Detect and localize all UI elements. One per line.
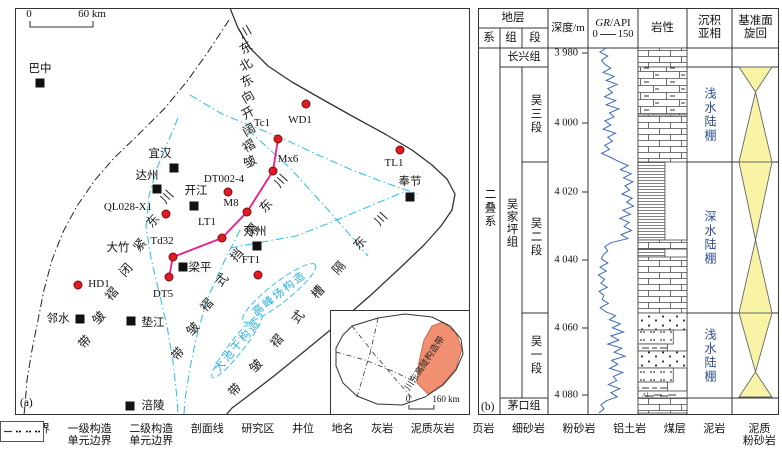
legend: 盆地边界一级构造 单元边界二级构造 单元边界剖面线研究区井位地名灰岩泥质灰岩页岩… xyxy=(0,421,782,473)
fold-belt-label-char: 川 xyxy=(271,171,291,191)
city-label-宜汉: 宜汉 xyxy=(149,145,172,161)
legend-label-place: 地名 xyxy=(332,423,354,435)
fold-belt-label-char: 式 xyxy=(288,307,308,327)
cycle-triangle-up xyxy=(739,92,772,162)
fold-belt-label-char: 东 xyxy=(236,39,255,58)
member-label-吴一段: 吴一段 xyxy=(522,313,548,398)
header-facies: 沉积 亚相 xyxy=(687,8,732,48)
gr-range: 0 150 xyxy=(593,29,634,40)
city-label-达州: 达州 xyxy=(136,167,159,183)
place-label-大竹: 大竹 xyxy=(107,239,130,255)
well-label-Td32: Td32 xyxy=(150,235,173,247)
fold-belt-label-char: 东 xyxy=(256,196,276,216)
member-label-吴二段: 吴二段 xyxy=(522,162,548,313)
depth-label: 4 020 xyxy=(544,187,578,198)
well-label-DT5: DT5 xyxy=(153,288,173,300)
scalebar-zero: 0 xyxy=(26,8,32,20)
legend-item-dashdot-black: 一级构造 单元边界 xyxy=(68,421,112,447)
legend-item-coal: 煤层 xyxy=(664,421,686,435)
legend-label-dashdot-cyan: 二级构造 单元边界 xyxy=(129,423,173,447)
lith-lime xyxy=(638,257,687,313)
gr-range-dash xyxy=(600,34,616,35)
depth-label: 4 060 xyxy=(544,323,578,334)
fold-belt-label-char: 北 xyxy=(237,55,256,74)
fold-belt-label-char: 东 xyxy=(350,234,370,254)
inset-scale-distance: 160 km xyxy=(432,394,459,404)
gr-label-italic: GR xyxy=(595,17,610,29)
legend-label-argsilt: 泥质 粉砂岩 xyxy=(743,423,776,447)
well-label-TL1: TL1 xyxy=(385,157,404,169)
city-label-涪陵: 涪陵 xyxy=(142,397,165,413)
cycle-triangle-down xyxy=(739,313,772,372)
fold-belt-label-char: 皱 xyxy=(183,319,203,339)
well-label-Mx6: Mx6 xyxy=(278,153,299,165)
legend-label-arglime: 泥质灰岩 xyxy=(411,423,455,435)
legend-label-profile: 剖面线 xyxy=(191,423,224,435)
legend-item-mud: 泥岩 xyxy=(703,421,725,435)
legend-item-argsilt: 泥质 粉砂岩 xyxy=(743,421,776,447)
facies-label: 浅水陆棚 xyxy=(687,313,732,398)
legend-label-well: 井位 xyxy=(292,423,314,435)
figure: 巴中宜汉达州开江万州奉节梁平邻水垫江涪陵大竹QL028-X1HD1DT5Td32… xyxy=(0,0,782,473)
legend-swatch-argsilt xyxy=(0,421,44,442)
legend-label-bauxite: 铝土岩 xyxy=(613,423,646,435)
depth-label: 4 080 xyxy=(544,390,578,401)
well-label-WD1: WD1 xyxy=(288,114,312,126)
legend-item-place: 地名 xyxy=(332,421,354,435)
legend-item-profile: 剖面线 xyxy=(191,421,224,435)
cycle-triangle-up xyxy=(739,240,772,313)
legend-item-lime: 灰岩 xyxy=(371,421,393,435)
legend-label-shale: 页岩 xyxy=(472,423,494,435)
header-depth: 深度/m xyxy=(548,8,588,48)
legend-item-arglime: 泥质灰岩 xyxy=(411,421,455,435)
panel-a-tag: (a) xyxy=(20,397,33,409)
gr-max: 150 xyxy=(618,29,634,40)
inset-scale-zero: 0 xyxy=(406,394,411,404)
cycle-triangle-down xyxy=(739,162,772,240)
depth-label: 3 980 xyxy=(544,48,578,59)
lith-arglime xyxy=(638,67,687,115)
header-gr: GR/API 0 150 xyxy=(588,8,638,48)
legend-label-finesand: 细砂岩 xyxy=(512,423,545,435)
city-label-邻水: 邻水 xyxy=(47,310,70,326)
lith-mud xyxy=(638,344,667,351)
fold-belt-label-char: 闭 xyxy=(116,260,136,280)
lith-lime xyxy=(638,240,687,249)
legend-item-dashdot-cyan: 二级构造 单元边界 xyxy=(129,421,173,447)
fold-belt-label-char: 褶 xyxy=(198,295,218,315)
lith-silt xyxy=(638,368,673,382)
argsilt-dot xyxy=(29,431,31,433)
well-label-LT1: LT1 xyxy=(198,216,216,228)
fold-belt-label-char: 带 xyxy=(75,332,95,352)
top-formation-label: 长兴组 xyxy=(500,48,548,67)
fold-belt-label-char: 川 xyxy=(371,209,391,229)
argsilt-dot xyxy=(19,431,21,433)
fold-belt-label-char: 皱 xyxy=(240,152,259,171)
lith-lime xyxy=(638,115,687,162)
fold-belt-label-char: 皱 xyxy=(246,356,266,376)
well-label-QL028-X1: QL028-X1 xyxy=(104,201,152,213)
series-label: 二叠系 xyxy=(478,188,500,298)
fold-belt-label-char: 隔 xyxy=(329,258,349,278)
legend-item-well: 井位 xyxy=(292,421,314,435)
legend-label-silt: 粉砂岩 xyxy=(563,423,596,435)
header-series-col: 系 xyxy=(478,28,500,48)
lith-finesand xyxy=(638,313,687,330)
city-label-垫江: 垫江 xyxy=(142,314,165,330)
well-label-M8: M8 xyxy=(223,197,238,209)
header-cycle: 基准面 旋回 xyxy=(732,8,779,48)
fold-belt-label-char: 带 xyxy=(168,344,188,364)
fold-belt-label-char: 川 xyxy=(235,22,254,41)
lith-lime xyxy=(638,398,687,413)
legend-item-silt: 粉砂岩 xyxy=(563,421,596,435)
argsilt-dot xyxy=(38,431,40,433)
lith-mud xyxy=(638,382,667,391)
depth-label: 4 040 xyxy=(544,255,578,266)
fold-belt-label-char: 东 xyxy=(143,211,163,231)
cycle-triangle-up xyxy=(739,372,772,397)
member-label-吴三段: 吴三段 xyxy=(522,67,548,162)
legend-item-bauxite: Al铝土岩 xyxy=(613,421,646,435)
gr-label-rest: /API xyxy=(610,17,631,29)
inset-label: 川东高陡构造带 xyxy=(401,333,447,393)
legend-label-lime: 灰岩 xyxy=(371,423,393,435)
city-label-巴中: 巴中 xyxy=(29,60,52,76)
strat-column-panel: Al 地层 系 组 段 深度/m GR/API 0 150 岩性 沉积 亚相 基… xyxy=(478,8,779,415)
fold-belt-label-char: 东 xyxy=(237,71,256,90)
fold-belt-label-char: 槽 xyxy=(309,282,329,302)
argsilt-dot xyxy=(16,431,18,433)
fold-belt-label-char: 褶 xyxy=(267,331,287,351)
well-label-DT002-4: DT002-4 xyxy=(204,173,244,185)
facies-label: 浅水陆棚 xyxy=(687,67,732,162)
city-label-奉节: 奉节 xyxy=(399,173,422,189)
header-strata: 地层 xyxy=(478,8,548,28)
lith-silt xyxy=(638,330,673,344)
legend-label-coal: 煤层 xyxy=(664,423,686,435)
fold-belt-label-char: 川 xyxy=(157,187,177,207)
city-label-梁平: 梁平 xyxy=(189,259,212,275)
panel-b-tag: (b) xyxy=(481,401,494,413)
depth-label: 4 000 xyxy=(544,118,578,129)
fold-belt-label-char: 紧 xyxy=(130,235,150,255)
legend-label-study: 研究区 xyxy=(241,423,274,435)
facies-label: 深水陆棚 xyxy=(687,162,732,313)
fold-belt-label-char: 褶 xyxy=(240,136,259,155)
formation-label: 吴家坪组 xyxy=(500,198,522,288)
legend-label-mud: 泥岩 xyxy=(703,423,725,435)
lith-shale xyxy=(638,249,665,257)
fold-belt-label-char: 带 xyxy=(225,380,245,400)
lith-lime xyxy=(638,48,687,67)
header-member-col: 段 xyxy=(522,28,548,48)
fold-belt-label-char: 式 xyxy=(212,270,232,290)
header-lithology: 岩性 xyxy=(638,8,687,48)
legend-label-dashdot-black: 一级构造 单元边界 xyxy=(68,423,112,447)
legend-item-finesand: 细砂岩 xyxy=(512,421,545,435)
lith-shale xyxy=(638,162,665,240)
header-formation-col: 组 xyxy=(500,28,522,48)
gr-curve xyxy=(598,48,633,413)
bottom-formation-label: 茅口组 xyxy=(500,398,548,415)
scalebar-distance: 60 km xyxy=(78,8,106,20)
cycle-triangle-down xyxy=(739,67,772,92)
lith-finesand xyxy=(638,351,687,368)
legend-item-shale: 页岩 xyxy=(472,421,494,435)
fold-belt-label-char: 皱 xyxy=(89,308,109,328)
argsilt-dot xyxy=(26,431,28,433)
legend-item-study: 研究区 xyxy=(241,421,274,435)
argsilt-dot xyxy=(35,431,37,433)
well-label-Tc1: Tc1 xyxy=(254,117,270,129)
gr-min: 0 xyxy=(593,29,598,40)
